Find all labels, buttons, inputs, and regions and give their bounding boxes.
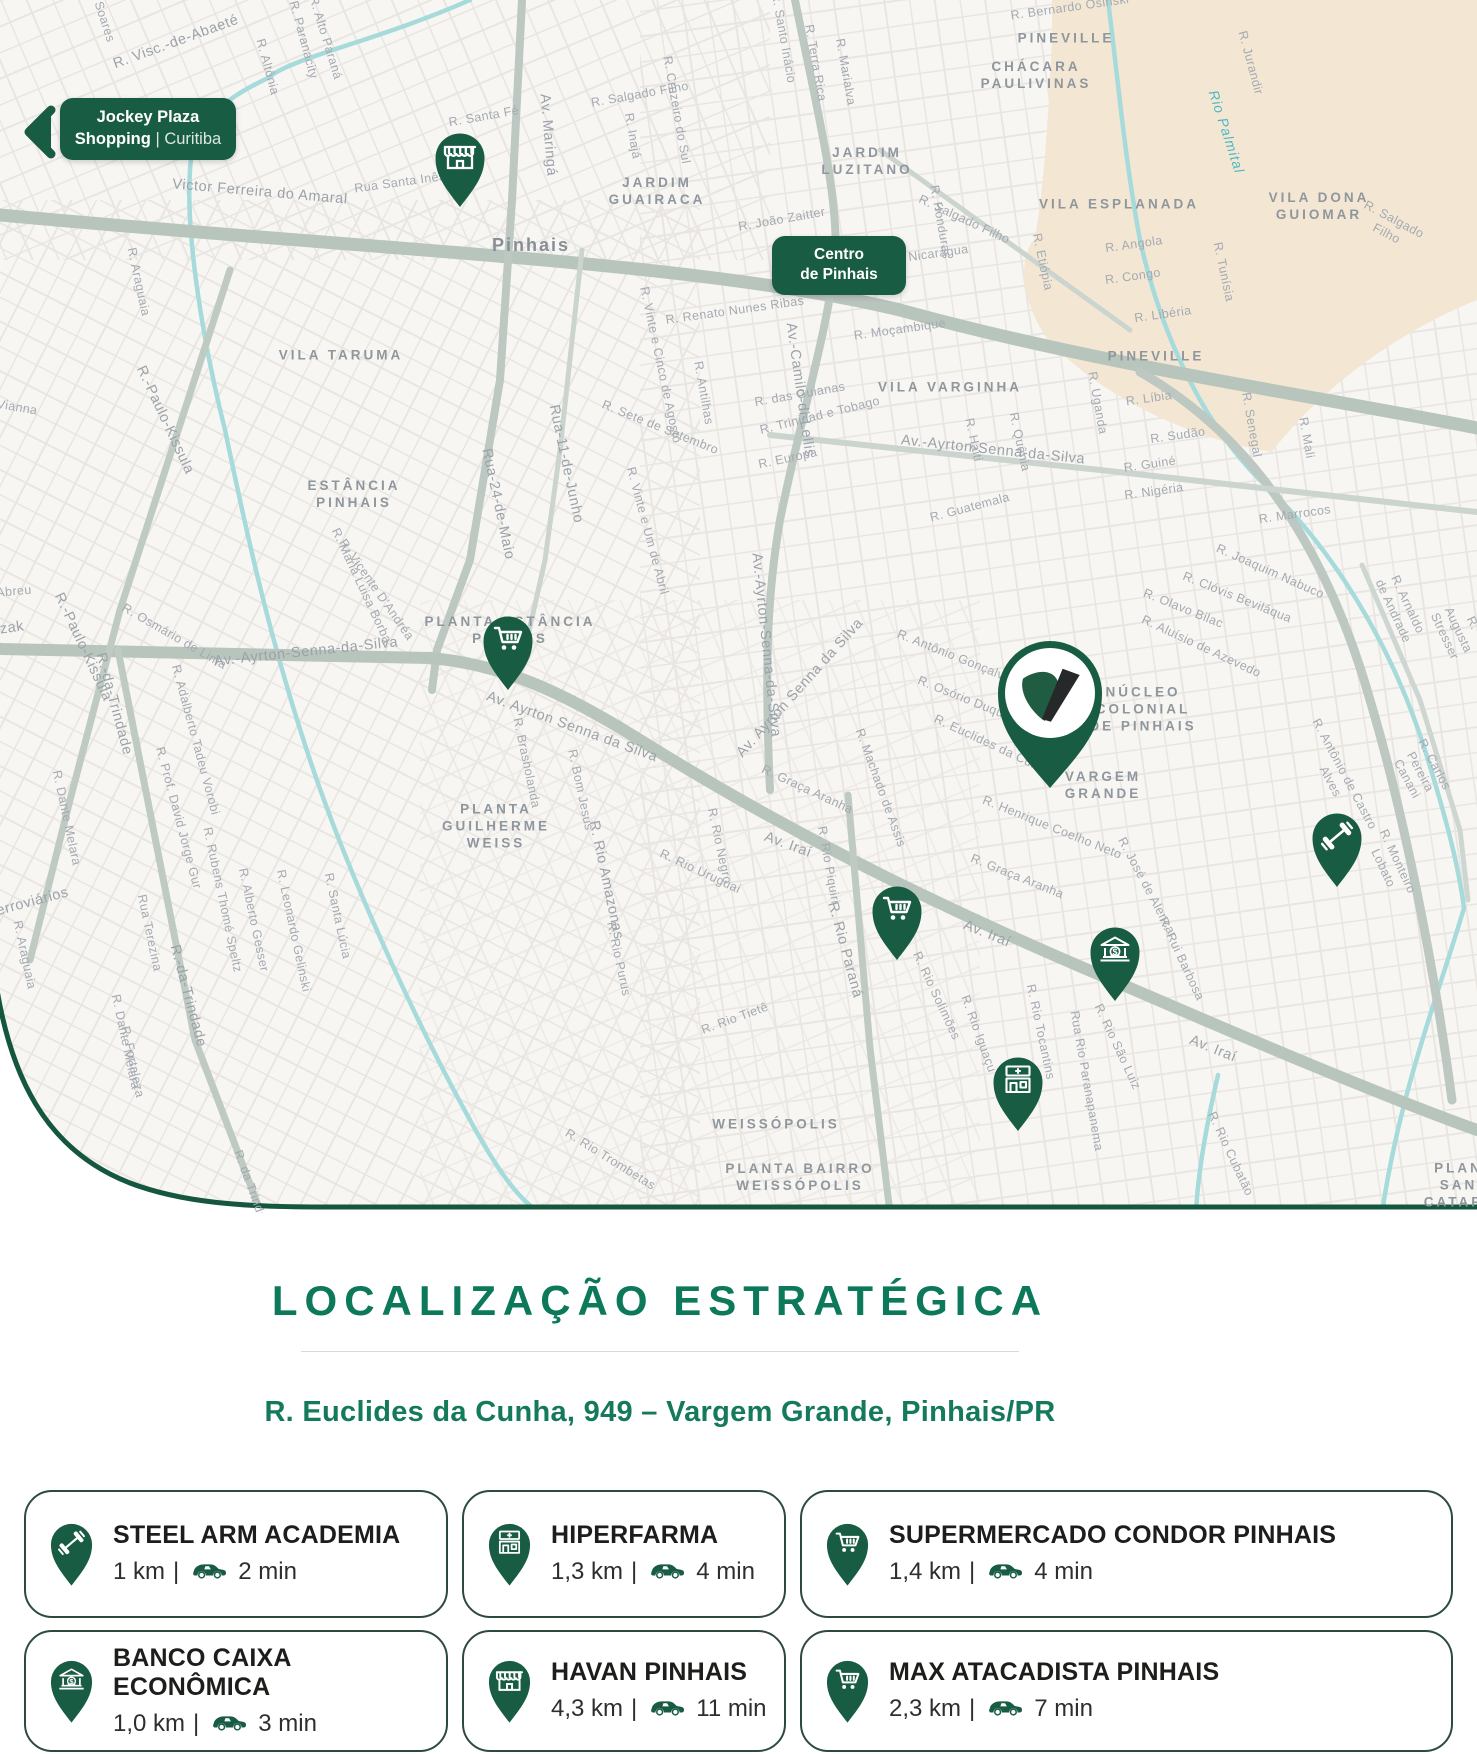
map-label: R. Clóvis Beviláqua [1180, 569, 1293, 627]
pharmacy-icon [990, 1054, 1046, 1132]
property-address: R. Euclides da Cunha, 949 – Vargem Grand… [0, 1396, 1320, 1429]
poi-time: 3 min [258, 1710, 317, 1738]
poi-distance-time: 1,3 km| 4 min [551, 1557, 755, 1587]
map-label: R. Rio São Luiz [1090, 1002, 1143, 1093]
separator: | [631, 1695, 637, 1723]
map-label: R. Henrique Coelho Neto [980, 793, 1124, 863]
dumbbell-pin-icon [48, 1521, 95, 1586]
poi-card: HIPERFARMA1,3 km| 4 min [462, 1490, 786, 1618]
map-label: R.-Paulo-Kissula [132, 363, 198, 477]
map-label: R. Araguaia [123, 246, 153, 317]
map-label: R. Rio Trombetas [562, 1126, 658, 1194]
map-label: PLANTA BAIRRO WEISSÓPOLIS [725, 1161, 874, 1195]
map-label: R. Trinidad e Tobago [758, 394, 881, 439]
map-label: R. Monteiro Lobato [1357, 819, 1422, 911]
map-label: R. Rio Tietê [699, 1000, 770, 1039]
poi-distance: 1,4 km [889, 1558, 961, 1586]
map-label: R. Etiópia [1028, 232, 1055, 292]
map-label: Rio Palmital [1204, 88, 1247, 176]
map-label: R. Marrocos [1258, 502, 1332, 528]
map-label: Av. Ayrton Senna da Silva [733, 615, 868, 762]
map-label: R. Honduras [926, 184, 954, 260]
map-label: R. Paranacity [285, 0, 321, 81]
map-label: R. Sete de Setembro [599, 397, 720, 458]
map-label: R. Prof. David Jorge Gur [152, 745, 205, 891]
pharmacy-pin[interactable] [990, 1054, 1046, 1132]
store-icon [432, 130, 488, 208]
section-title: LOCALIZAÇÃO ESTRATÉGICA [0, 1277, 1320, 1325]
map-label: R. Carlos Pereira Canani [1386, 736, 1454, 808]
poi-card: STEEL ARM ACADEMIA1 km| 2 min [24, 1490, 448, 1618]
poi-time: 2 min [238, 1558, 297, 1586]
jockey-plaza-line1: Jockey Plaza [72, 107, 224, 129]
poi-card: MAX ATACADISTA PINHAIS2,3 km| 7 min [800, 1630, 1453, 1752]
separator: | [969, 1558, 975, 1586]
map-label: R. Augusta Stresser [1426, 598, 1477, 663]
map-label: R. da Trindade [230, 1148, 275, 1213]
car-icon [987, 1557, 1024, 1580]
supermarket-pin-1[interactable] [480, 613, 536, 691]
poi-name: BANCO CAIXA ECONÔMICA [113, 1644, 432, 1702]
map-label: R. Vinte e Cinco de Agosto [636, 285, 684, 444]
poi-time: 7 min [1034, 1695, 1093, 1723]
map-label: Av.-Ayrton-Senna-da-Silva [900, 431, 1086, 468]
map-label: R. Nigéria [1123, 480, 1184, 504]
map-label: Soares [90, 0, 118, 44]
map-label: R. Alto Paraná [305, 0, 345, 82]
map-label: R. Araguaia [9, 919, 39, 990]
map-label: Av.-Camilo-di-Lellis [782, 322, 819, 459]
map-label: PLANTA SANTA CATARINA [1424, 1161, 1477, 1212]
store-pin-icon [486, 1658, 533, 1723]
map-label: Av. Iraí [762, 828, 815, 862]
map-label: Rua Rio Paranapanema [1066, 1010, 1106, 1153]
map-label: ESTÂNCIA PINHAIS [307, 478, 400, 512]
intro-section: LOCALIZAÇÃO ESTRATÉGICA R. Euclides da C… [0, 1213, 1320, 1429]
map-labels-layer: VILA TARUMAESTÂNCIA PINHAISPLANTA ESTÂNC… [0, 0, 1477, 1213]
cart-pin-icon [824, 1658, 871, 1723]
map-label: R. Leonardo Gelinski [272, 868, 313, 993]
map-label: R. Europa [757, 445, 819, 473]
map-label: PINEVILLE [1018, 31, 1115, 48]
map-label: R. Salgado Filho [1344, 193, 1435, 261]
map-label: R. Adalberto Tadeu Vorobi [167, 663, 222, 817]
cart-icon [480, 613, 536, 691]
map-label: R. Maria Luisa Borba [327, 526, 394, 646]
map-label: R. Rui Barbosa [1155, 915, 1207, 1004]
cart-pin-icon [824, 1521, 871, 1586]
map-label: R. Mali [1295, 416, 1318, 460]
map-label: R. Graça Aranha [759, 762, 855, 818]
map-label: R. Alberto Gesser [234, 867, 271, 973]
map-label: VILA DONA GUIOMAR [1269, 190, 1370, 224]
bank-pin[interactable]: $ [1087, 924, 1143, 1002]
map-label: R. Salgado Filho [590, 79, 690, 112]
map-label: R. Vicente D'Andréa [335, 536, 417, 643]
map-label: R. Renato Nunes Ribas [665, 294, 806, 329]
jockey-plaza-badge[interactable]: Jockey Plaza Shopping | Curitiba [60, 98, 236, 160]
map-label: R. Líbia [1125, 388, 1173, 410]
map-label: R. Rio Uruguai [657, 846, 743, 897]
map-label: R.-da-Trindade [92, 651, 137, 757]
map-label: R. Marialva [831, 37, 858, 106]
poi-cards-grid: STEEL ARM ACADEMIA1 km| 2 min HIPERFARMA… [24, 1490, 1453, 1752]
map-label: R.-Paulo-Kissula [50, 590, 116, 704]
map-label: R. Vinte e Um de Abril [622, 465, 671, 596]
map-label: JARDIM LUZITANO [821, 145, 912, 179]
map-label: R. Rio Solimões [909, 949, 964, 1042]
map-label: R. Cruzeiro do Sul [659, 55, 693, 165]
map-label: R. Terra Rica [801, 23, 830, 102]
map-label: R. Angola [1104, 233, 1163, 257]
map-label: Rua Terezina [133, 893, 165, 973]
store-pin[interactable] [432, 130, 488, 208]
map-label: R. Osmário de Lima [119, 601, 229, 674]
supermarket-pin-2[interactable] [869, 883, 925, 961]
map-label: R. Santa Fé [448, 103, 521, 131]
map-label: R. Fortaleza [117, 1025, 147, 1100]
poi-distance: 1 km [113, 1558, 165, 1586]
car-icon [649, 1557, 686, 1580]
map-label: R. Dante Melara [48, 769, 83, 867]
map-label: R. Antilhas [690, 360, 717, 426]
poi-card: $BANCO CAIXA ECONÔMICA1,0 km| 3 min [24, 1630, 448, 1752]
map-label: R. Bom Jesus [564, 748, 596, 832]
poi-name: MAX ATACADISTA PINHAIS [889, 1658, 1219, 1687]
map-label: R. Altônia [252, 37, 282, 97]
arrow-left-icon [21, 103, 59, 161]
map-label: VILA ESPLANADA [1039, 197, 1199, 214]
gym-pin[interactable] [1309, 810, 1365, 888]
map-label: Av.-Ayrton-Senna-da-Silva [213, 633, 399, 670]
poi-distance-time: 1 km| 2 min [113, 1557, 400, 1587]
map-label: R. Dante Melara [107, 993, 142, 1091]
map-label: VILA TARUMA [279, 348, 404, 365]
map-label: R. Salgado Filho [916, 192, 1012, 248]
map-label: PINEVILLE [1108, 349, 1205, 366]
poi-name: SUPERMERCADO CONDOR PINHAIS [889, 1521, 1336, 1550]
map-label: JARDIM GUAIRACA [609, 175, 706, 209]
map-label: Vianna [0, 397, 39, 420]
map-label: R. Rio Paraná [823, 900, 866, 1000]
separator: | [631, 1558, 637, 1586]
map-label: R. Machado de Assis [851, 727, 908, 850]
map-label: Rua-11-de-Junho [545, 403, 588, 525]
map-label: R. Rio Purus [602, 920, 633, 997]
poi-distance: 1,0 km [113, 1710, 185, 1738]
poi-distance: 1,3 km [551, 1558, 623, 1586]
map-label: R. Olavo Bilac [1141, 586, 1225, 632]
map-label: R. Jurandir [1234, 29, 1266, 96]
poi-distance: 4,3 km [551, 1695, 623, 1723]
map-label: R. Tunísia [1209, 241, 1237, 303]
map-label: PLANTA GUILHERME WEISS [442, 802, 550, 853]
poi-distance-time: 1,0 km| 3 min [113, 1709, 432, 1739]
map-label: R. Guatemala [928, 490, 1011, 526]
bank-pin-icon: $ [48, 1658, 95, 1723]
map-label: CHÁCARA PAULIVINAS [981, 59, 1092, 93]
map-label: R. Quênia [1005, 411, 1033, 473]
map-label: R. Guiné [1123, 454, 1177, 477]
map-label: R. Libéria [1133, 303, 1192, 326]
map-label: R. Graça Aranha [968, 851, 1066, 903]
map-label: R. Brasholanda [509, 716, 543, 809]
poi-time: 4 min [696, 1558, 755, 1586]
poi-time: 11 min [696, 1695, 766, 1723]
poi-time: 4 min [1034, 1558, 1093, 1586]
poi-distance-time: 4,3 km| 11 min [551, 1694, 767, 1724]
map-label: R. Moçambique [853, 316, 947, 344]
map-label: Rua-24-de-Maio [477, 447, 518, 561]
cart-icon [869, 883, 925, 961]
svg-text:$: $ [1112, 947, 1117, 957]
map-label: R. Aluísio de Azevedo [1139, 612, 1263, 681]
poi-distance-time: 1,4 km| 4 min [889, 1557, 1336, 1587]
car-icon [191, 1557, 228, 1580]
map-label: R. Arnaldo de Andrade [1370, 567, 1431, 650]
car-icon [987, 1694, 1024, 1717]
map-label: R. Senegal [1238, 391, 1265, 459]
map-label: zak [0, 617, 25, 638]
map-label: R. das Guianas [753, 379, 846, 410]
map-label: R. João Zaitter [737, 205, 826, 236]
map-label: R. Inajá [620, 112, 643, 160]
separator: | [173, 1558, 179, 1586]
map-label: R. Visc.-de-Abaeté [111, 11, 241, 73]
map-label: R. Haiti [961, 417, 985, 463]
map-label: Av. Maringá [535, 93, 560, 177]
poi-distance: 2,3 km [889, 1695, 961, 1723]
map-label: R. Bernardo Osinski [1010, 0, 1130, 24]
map-label: R.-da-Trindade [166, 943, 211, 1049]
map-label: R. Rio Negro [703, 807, 734, 886]
poi-name: HAVAN PINHAIS [551, 1658, 767, 1687]
poi-card: SUPERMERCADO CONDOR PINHAIS1,4 km| 4 min [800, 1490, 1453, 1618]
separator: | [969, 1695, 975, 1723]
title-divider [301, 1351, 1019, 1352]
map-label: R. Rio Amazonas [585, 819, 628, 941]
car-icon [649, 1694, 686, 1717]
map-label: VILA VARGINHA [878, 380, 1022, 397]
map-label: R. Rio Cubatão [1204, 1109, 1257, 1198]
map-label: R. Sudão [1150, 424, 1207, 447]
map-label: Av. Ayrton Senna da Silva [484, 688, 660, 767]
vlogo-icon [989, 632, 1111, 792]
map-label: Ferroviários [0, 883, 71, 922]
map-label: R. Rubens Thomé Speltz [199, 826, 245, 974]
property-pin[interactable] [989, 632, 1111, 792]
poi-name: HIPERFARMA [551, 1521, 755, 1550]
map-label: R. Santa Lúcia [320, 872, 353, 961]
map-label: R. Uganda [1084, 370, 1110, 435]
map-label: Abreu [0, 583, 32, 602]
map-label: R. Rio Piquiri [813, 825, 842, 905]
map-label: R. Joaquim Nabuco [1214, 541, 1327, 603]
location-flyer: VILA TARUMAESTÂNCIA PINHAISPLANTA ESTÂNC… [0, 0, 1477, 1754]
map-label: R. Santo Inácio [767, 0, 798, 84]
map-label: Av. Iraí [1187, 1031, 1240, 1066]
map-label: WEISSÓPOLIS [712, 1117, 840, 1134]
map-label: Victor Ferreira do Amaral [172, 175, 349, 208]
map-canvas[interactable]: VILA TARUMAESTÂNCIA PINHAISPLANTA ESTÂNC… [0, 0, 1477, 1213]
car-icon [211, 1709, 248, 1732]
map-label: R. Congo [1104, 265, 1162, 288]
dumbbell-icon [1309, 810, 1365, 888]
map-label: Pinhais [492, 234, 570, 257]
centro-pinhais-badge[interactable]: Centro de Pinhais [772, 236, 906, 295]
map-label: Av. Iraí [961, 916, 1014, 951]
pharmacy-pin-icon [486, 1521, 533, 1586]
poi-name: STEEL ARM ACADEMIA [113, 1521, 400, 1550]
bank-icon: $ [1087, 924, 1143, 1002]
poi-distance-time: 2,3 km| 7 min [889, 1694, 1219, 1724]
map-label: Av.-Ayrton-Senna-da-Silva [747, 552, 784, 738]
poi-card: HAVAN PINHAIS4,3 km| 11 min [462, 1630, 786, 1752]
separator: | [193, 1710, 199, 1738]
